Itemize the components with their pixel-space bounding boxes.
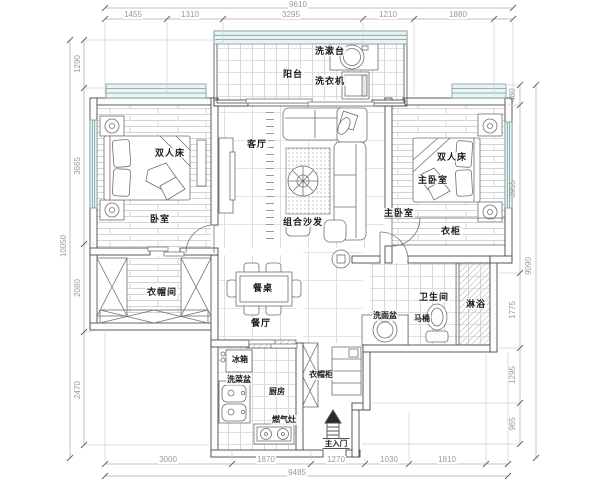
dim-bottom-3: 1270 xyxy=(326,456,346,464)
label-bedroom: 卧室 xyxy=(149,214,171,224)
dim-left-2: 3665 xyxy=(74,157,82,175)
label-living-room: 客厅 xyxy=(246,139,268,149)
dim-top-5: 1880 xyxy=(448,11,468,19)
dim-bottom-1: 3000 xyxy=(158,456,178,464)
dim-right-total: 9090 xyxy=(525,257,533,275)
label-balcony: 阳台 xyxy=(282,69,304,79)
label-dining-table: 餐桌 xyxy=(252,283,274,293)
label-fridge: 冰箱 xyxy=(231,355,249,365)
label-wash-basin: 洗面盆 xyxy=(372,311,398,321)
dim-top-2: 1310 xyxy=(180,11,200,19)
label-shower: 淋浴 xyxy=(465,299,487,309)
label-cloakroom: 衣帽间 xyxy=(146,287,178,297)
label-toilet: 马桶 xyxy=(413,314,431,324)
label-bathroom: 卫生间 xyxy=(418,292,450,302)
dim-right-5: 965 xyxy=(509,417,517,430)
label-master-bedroom: 主卧室 xyxy=(417,175,449,185)
dim-right-4: 1295 xyxy=(509,366,517,384)
dim-top-total: 9610 xyxy=(288,1,308,9)
dim-bottom-2: 1870 xyxy=(256,456,276,464)
label-main-entrance: 主入门 xyxy=(323,438,350,449)
label-double-bed-right: 双人床 xyxy=(436,152,468,162)
dim-left-3: 2080 xyxy=(74,279,82,297)
label-washing-machine: 洗衣机 xyxy=(314,76,346,86)
dim-left-4: 2470 xyxy=(74,381,82,399)
faucet-icon xyxy=(362,46,368,50)
dim-top-1: 1455 xyxy=(123,11,143,19)
dim-right-1: 480 xyxy=(509,88,517,101)
label-gas-stove: 燃气灶 xyxy=(271,415,297,425)
dim-right-2: 3955 xyxy=(509,180,517,198)
label-washstand: 洗漱台 xyxy=(314,46,346,56)
label-vegetable-sink: 洗菜盆 xyxy=(226,375,252,385)
dim-right-3: 1775 xyxy=(509,301,517,319)
label-master-bedroom-entry: 主卧室 xyxy=(383,208,415,218)
dim-left-total: 10050 xyxy=(60,235,68,257)
label-double-bed-left: 双人床 xyxy=(154,148,186,158)
dim-bottom-total: 9485 xyxy=(287,469,307,477)
label-coat-cabinet: 衣帽柜 xyxy=(308,370,334,380)
label-kitchen: 厨房 xyxy=(268,387,286,397)
armchair xyxy=(324,220,346,242)
door-balcony-slide xyxy=(246,99,312,103)
dim-bottom-5: 1810 xyxy=(437,456,457,464)
dim-bottom-4: 1030 xyxy=(379,456,399,464)
dim-top-3: 3295 xyxy=(281,11,301,19)
label-wardrobe: 衣柜 xyxy=(440,226,462,236)
tv xyxy=(230,152,235,200)
label-sofa: 组合沙发 xyxy=(282,217,324,227)
door-cloakroom-slide xyxy=(148,247,168,251)
floor-plan-canvas: 洗漱台 阳台 洗衣机 客厅 双人床 卧室 组合沙发 双人床 主卧室 主卧室 衣柜… xyxy=(0,0,600,490)
door-kitchen-slide xyxy=(249,340,275,344)
dim-left-1: 1290 xyxy=(74,55,82,73)
label-dining-room: 餐厅 xyxy=(250,318,272,328)
toilet-base xyxy=(426,331,448,342)
dim-top-4: 1210 xyxy=(378,11,398,19)
